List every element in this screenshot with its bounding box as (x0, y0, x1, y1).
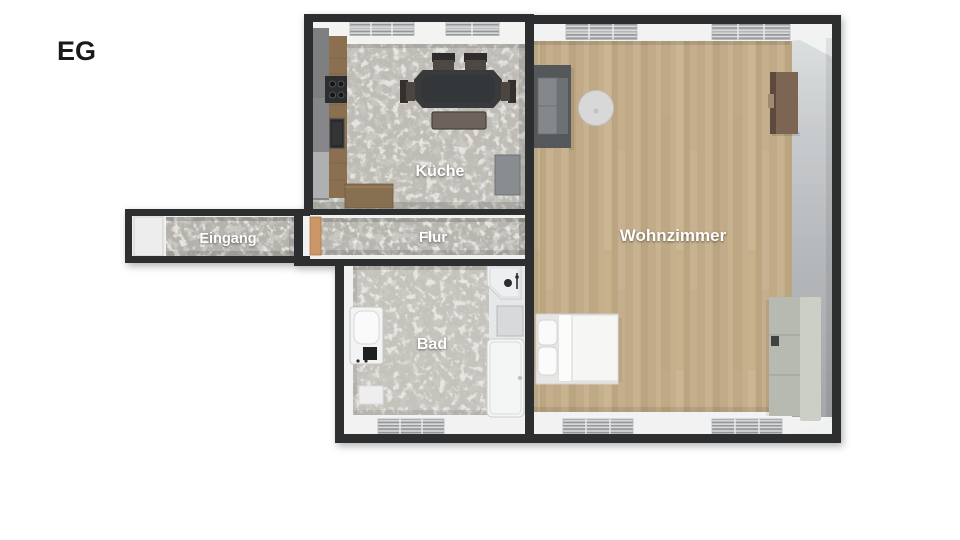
svg-text:Eingang: Eingang (199, 231, 256, 247)
svg-text:Küche: Küche (416, 163, 465, 180)
svg-text:Flur: Flur (419, 229, 447, 246)
svg-text:EG: EG (57, 36, 96, 66)
svg-text:Bad: Bad (417, 336, 447, 353)
svg-text:Wohnzimmer: Wohnzimmer (620, 226, 727, 245)
